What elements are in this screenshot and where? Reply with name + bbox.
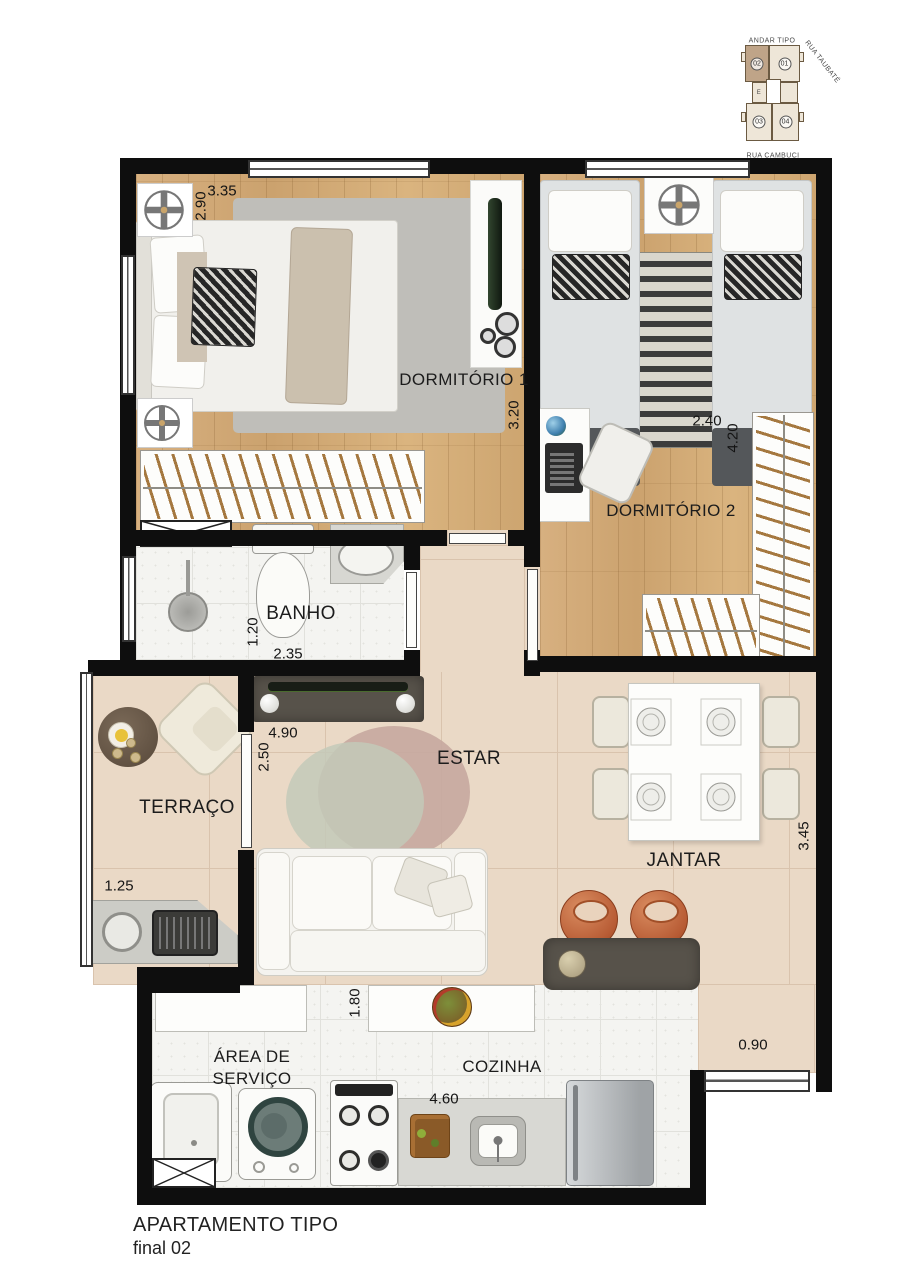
plan-subtitle: final 02 — [133, 1238, 191, 1259]
room-label-banho: BANHO — [266, 603, 336, 625]
dim-cozinha-top: 1.80 — [347, 988, 364, 1017]
grill — [152, 910, 218, 956]
window — [122, 556, 136, 642]
stove — [330, 1080, 398, 1186]
ceiling-fan-icon — [656, 182, 702, 228]
key-plan-title: ANDAR TIPO — [749, 38, 796, 45]
table-cup — [130, 752, 141, 763]
wall — [404, 546, 420, 570]
washer-knob — [289, 1163, 299, 1173]
nightstand — [644, 176, 714, 234]
key-balcony — [799, 52, 804, 62]
dim-banho-width: 2.35 — [273, 646, 302, 663]
plan-title: APARTAMENTO TIPO — [133, 1214, 338, 1237]
living-tv — [268, 682, 408, 691]
armchair-cushion — [189, 704, 240, 755]
wardrobe-rail — [143, 487, 422, 489]
pattern-cushion — [191, 267, 258, 347]
place-setting — [700, 698, 742, 746]
room-label-servico: ÁREA DE SERVIÇO — [204, 1046, 300, 1090]
terrace-sink — [102, 912, 142, 952]
floor-hall — [420, 546, 524, 676]
stove-panel — [335, 1084, 393, 1096]
key-plan: ANDAR TIPO 02 01 E 03 04 RUA CAMBUCI RUA… — [730, 28, 900, 168]
unit-number-badge: 04 — [779, 116, 792, 129]
laptop-keyboard — [550, 450, 574, 486]
unit-number-badge: 02 — [751, 57, 764, 70]
place-setting — [700, 773, 742, 821]
terrace-railing — [80, 672, 93, 967]
room-label-estar: ESTAR — [437, 748, 501, 770]
unit-number-badge: 03 — [753, 116, 766, 129]
street-label-right: RUA TAUBATÉ — [803, 39, 840, 84]
shower-arm — [186, 560, 190, 596]
door-dorm2 — [527, 569, 538, 661]
ceiling-fan-icon — [142, 188, 186, 232]
dim-estar-height: 2.50 — [256, 742, 273, 771]
dim-dorm1-depth: 3.20 — [506, 400, 523, 429]
dining-chair — [592, 768, 630, 820]
wardrobe-rail — [645, 630, 757, 632]
duct-cross-box — [152, 1158, 216, 1188]
dining-chair — [592, 696, 630, 748]
fridge — [566, 1080, 654, 1186]
wall — [524, 158, 540, 567]
dim-cozinha-width: 4.60 — [429, 1091, 458, 1108]
cutting-board — [410, 1114, 450, 1158]
toilet-bowl — [256, 552, 310, 638]
key-elevator — [766, 79, 781, 106]
tank-basin — [163, 1093, 219, 1167]
floor-jantar-pocket — [698, 985, 816, 1073]
sofa-arm — [258, 852, 290, 970]
dim-terraco-width: 1.25 — [104, 878, 133, 895]
window — [585, 160, 750, 178]
dining-chair — [762, 768, 800, 820]
floor-plan-page: { "key_plan": { "title": "ANDAR TIPO", "… — [0, 0, 914, 1280]
key-unit-02: 02 — [745, 45, 769, 82]
grill-grate — [159, 917, 211, 949]
wall — [120, 530, 447, 546]
dim-banho-height: 1.20 — [245, 617, 262, 646]
wall — [137, 1188, 706, 1205]
wall — [404, 650, 420, 662]
washing-machine — [238, 1088, 316, 1180]
window — [704, 1070, 810, 1092]
bed-pillow — [548, 190, 632, 252]
dim-dorm1-height: 2.90 — [193, 191, 210, 220]
street-label-bottom: RUA CAMBUCI — [746, 153, 799, 160]
decor-sphere — [396, 694, 415, 713]
dining-chair — [762, 696, 800, 748]
wall — [238, 850, 254, 985]
pattern-cushion — [552, 254, 630, 300]
speaker — [494, 336, 516, 358]
door-banho — [406, 572, 417, 648]
dim-estar-width: 4.90 — [268, 725, 297, 742]
fan-panel — [137, 183, 193, 237]
door-dorm1 — [449, 533, 506, 544]
burner — [339, 1150, 360, 1171]
wall — [88, 660, 420, 676]
shower-head-icon — [168, 592, 208, 632]
kitchen-sink — [470, 1116, 526, 1166]
globe — [546, 416, 566, 436]
burner — [339, 1105, 360, 1126]
room-label-dorm2: DORMITÓRIO 2 — [606, 501, 735, 521]
terrace-glass-door — [241, 734, 252, 848]
burner — [368, 1105, 389, 1126]
counter-knob — [558, 950, 586, 978]
ceiling-fan-icon — [142, 403, 182, 443]
window — [121, 255, 135, 395]
key-elevator-label: E — [757, 90, 761, 96]
key-unit-01: 01 — [769, 45, 800, 82]
key-unit-04: 04 — [772, 103, 799, 141]
faucet-stem — [497, 1142, 499, 1162]
unit-number-badge: 01 — [778, 57, 791, 70]
key-unit-03: 03 — [746, 103, 772, 141]
vegetables — [431, 1139, 439, 1147]
wall — [508, 530, 540, 546]
window — [248, 160, 430, 178]
fruit-plate — [432, 987, 472, 1027]
sofa-cushion — [292, 856, 372, 930]
table-cup — [112, 748, 123, 759]
fan-panel — [137, 398, 193, 448]
wardrobe-dorm2-side — [752, 412, 814, 668]
room-label-terraco: TERRAÇO — [139, 797, 235, 819]
place-setting — [630, 698, 672, 746]
wall — [137, 967, 240, 993]
throw-blanket — [285, 227, 353, 405]
key-balcony — [741, 52, 746, 62]
dim-dorm1-width: 3.35 — [207, 183, 236, 200]
wardrobe-dorm1 — [140, 450, 425, 523]
tank-drain — [191, 1140, 197, 1146]
wall — [540, 656, 832, 672]
bed-pillow — [720, 190, 804, 252]
washer-knob — [253, 1161, 265, 1173]
laptop — [545, 443, 583, 493]
speaker — [495, 312, 519, 336]
table-cup — [126, 738, 136, 748]
room-label-jantar: JANTAR — [647, 850, 722, 872]
wall — [238, 672, 254, 732]
dim-dorm2-height: 4.20 — [725, 423, 742, 452]
wall-tv — [488, 198, 502, 310]
vegetables — [417, 1129, 426, 1138]
wardrobe-rail — [783, 415, 785, 665]
washer-door — [261, 1113, 287, 1139]
wall — [816, 158, 832, 1092]
fridge-handle — [573, 1085, 578, 1181]
dim-jantar-passage: 0.90 — [738, 1037, 767, 1054]
sofa-back — [290, 930, 486, 972]
dim-dorm2-width: 2.40 — [692, 413, 721, 430]
dim-jantar-height: 3.45 — [796, 821, 813, 850]
key-balcony — [799, 112, 804, 122]
burner — [368, 1150, 389, 1171]
decor-sphere — [260, 694, 279, 713]
pattern-cushion — [724, 254, 802, 300]
room-label-cozinha: COZINHA — [462, 1057, 541, 1077]
round-rug-green — [286, 742, 424, 862]
room-label-dorm1: DORMITÓRIO 1 — [399, 370, 528, 390]
wall — [137, 985, 152, 1205]
speaker — [480, 328, 496, 344]
key-balcony — [741, 112, 746, 122]
place-setting — [630, 773, 672, 821]
